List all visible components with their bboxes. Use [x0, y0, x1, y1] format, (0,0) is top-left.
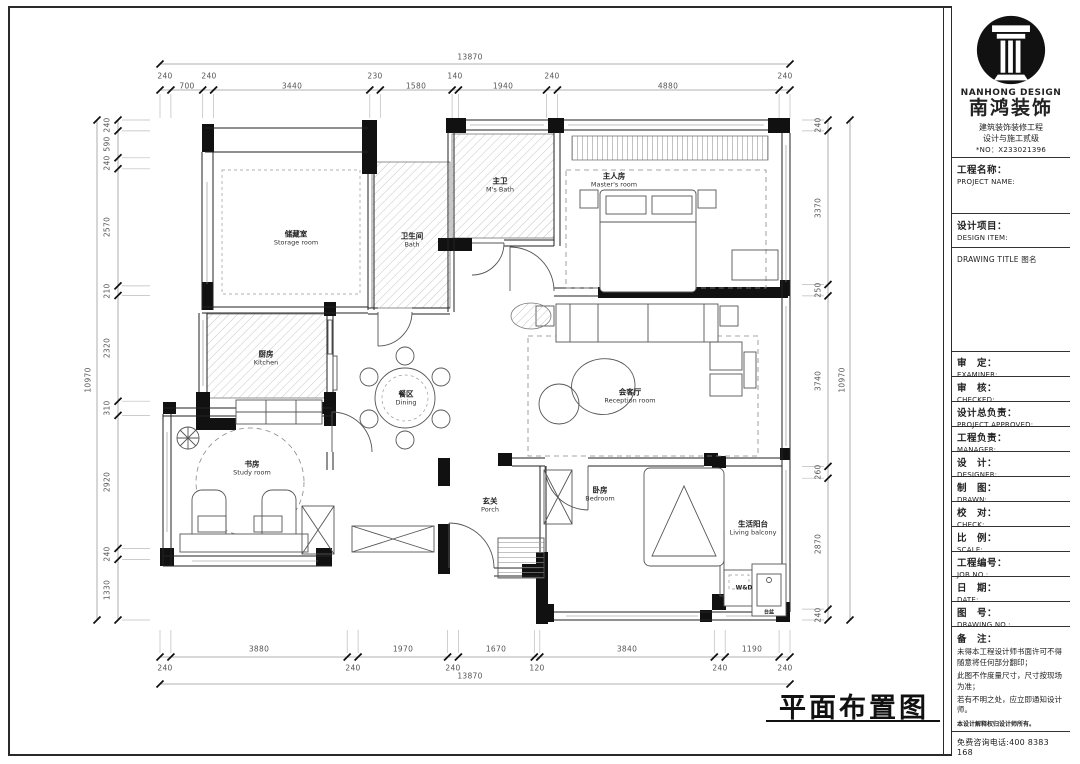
dim-label: 1670: [486, 645, 506, 654]
room-name-cn: 卫生间: [401, 231, 424, 240]
room-label-bedroom: 卧房 Bedroom: [585, 485, 614, 503]
dim-label: 120: [529, 664, 544, 673]
master-bed: [600, 190, 696, 292]
door-swings: [332, 243, 588, 568]
dim-total-top: 13870: [457, 53, 482, 62]
dim-total-left: 10970: [84, 367, 93, 392]
room-label-masters-bath: 主卫 M's Bath: [486, 176, 514, 194]
field-label-cn: 审 核：: [957, 380, 1065, 394]
dim-label: 310: [103, 400, 112, 415]
dim-label: 3370: [814, 198, 823, 218]
tv-cabinet: [710, 342, 742, 370]
room-name-cn: 餐区: [396, 389, 417, 398]
lounge-chair: [539, 384, 579, 424]
dim-label: 1970: [393, 645, 413, 654]
dim-label: 240: [712, 664, 727, 673]
hotline: 免费咨询电话:400 8383 168: [952, 732, 1070, 756]
dim-label: 140: [447, 72, 462, 81]
floor-plan-drawing: [0, 0, 945, 764]
field-label-cn: 图 号：: [957, 605, 1065, 619]
dining-chair: [432, 368, 450, 386]
room-name-cn: 卧房: [585, 485, 614, 494]
dim-label: 1190: [742, 645, 762, 654]
room-label-living-balcony: 生活阳台 Living balcony: [730, 519, 777, 537]
dim-label: 240: [103, 155, 112, 170]
room-name-en: Kitchen: [254, 359, 278, 367]
side-table: [720, 306, 738, 326]
room-label-bath: 卫生间 Bath: [401, 231, 424, 249]
room-name-en: Storage room: [274, 239, 318, 247]
cert-line2: 设计与施工贰级: [952, 133, 1070, 144]
room-label-porch: 玄关 Porch: [481, 496, 499, 514]
room-name-cn: 主人房: [591, 171, 637, 180]
dim-label: 590: [103, 136, 112, 151]
dim-label: 240: [157, 72, 172, 81]
dim-label: 700: [179, 82, 194, 91]
cert-line1: 建筑装饰装修工程: [952, 122, 1070, 133]
field-label-cn: 工程名称：: [957, 162, 1065, 176]
room-name-en: Bedroom: [585, 495, 614, 503]
field-label-cn: 制 图：: [957, 480, 1065, 494]
room-label-reception: 会客厅 Reception room: [604, 387, 655, 405]
license-number: *NO：X233021396: [952, 145, 1070, 155]
dim-label: 250: [814, 282, 823, 297]
field-scale: 比 例： SCALE:: [952, 527, 1070, 552]
dim-label: 4880: [658, 82, 678, 91]
field-label-cn: 审 定：: [957, 355, 1065, 369]
dresser: [732, 250, 778, 280]
dim-label: 240: [103, 546, 112, 561]
field-label-cn: 比 例：: [957, 530, 1065, 544]
field-project-approved: 设计总负责： PROJECT APPROVED:: [952, 402, 1070, 427]
dim-label: 240: [345, 664, 360, 673]
nightstand: [698, 190, 716, 208]
notes-title: 备 注：: [957, 631, 1065, 645]
dim-label: 1940: [493, 82, 513, 91]
room-name-en: Reception room: [604, 397, 655, 405]
dim-label: 3440: [282, 82, 302, 91]
dim-label: 240: [157, 664, 172, 673]
field-design-item: 设计项目： DESIGN ITEM:: [952, 214, 1070, 248]
dim-label: 2920: [103, 472, 112, 492]
dim-label: 1330: [103, 580, 112, 600]
field-label-cn: 设计项目：: [957, 218, 1065, 232]
sofa: [556, 304, 718, 342]
plant: [511, 303, 551, 329]
dim-label: 240: [814, 117, 823, 132]
field-designer: 设 计： DESIGNER:: [952, 452, 1070, 477]
dim-label: 230: [367, 72, 382, 81]
dining-chair: [396, 431, 414, 449]
field-label-cn: 工程负责：: [957, 430, 1065, 444]
dim-label: 240: [201, 72, 216, 81]
room-label-storage: 储藏室 Storage room: [274, 229, 318, 247]
dim-label: 210: [103, 283, 112, 298]
room-name-en: Study room: [233, 469, 271, 477]
dim-label: 240: [814, 607, 823, 622]
dim-total-bottom: 13870: [457, 672, 482, 681]
room-label-master-room: 主人房 Master's room: [591, 171, 637, 189]
field-manager: 工程负责： MANAGER:: [952, 427, 1070, 452]
note-line: 若有不明之处，应立即通知设计师。: [957, 695, 1065, 717]
washer-dryer-label: W&D: [736, 585, 753, 592]
field-job-no: 工程编号： JOB NO.:: [952, 552, 1070, 577]
drawing-sheet: { "sheet": { "drawing_title": "平面布置图" },…: [0, 0, 1080, 764]
field-label-cn: 设计总负责：: [957, 405, 1065, 419]
field-label-cn: 校 对：: [957, 505, 1065, 519]
basin-label: 台盆: [764, 609, 774, 616]
dim-label: 2320: [103, 338, 112, 358]
room-name-en: Porch: [481, 506, 499, 514]
master-wardrobe: [572, 136, 768, 160]
dim-label: 240: [544, 72, 559, 81]
dim-label: 240: [777, 72, 792, 81]
drawing-title-underline: [766, 720, 940, 722]
bed: [644, 468, 724, 566]
room-name-en: Bath: [401, 241, 424, 249]
field-drawn: 制 图： DRAWN:: [952, 477, 1070, 502]
company-certification: 建筑装饰装修工程 设计与施工贰级: [952, 122, 1070, 144]
dining-chair: [360, 410, 378, 428]
note-line: 此图不作度量尺寸，尺寸按现场为准；: [957, 671, 1065, 693]
room-label-study: 书房 Study room: [233, 459, 271, 477]
field-date: 日 期： DATE:: [952, 577, 1070, 602]
tv-cabinet: [710, 374, 742, 396]
shoe-bench: [498, 538, 544, 578]
room-name-cn: 书房: [233, 459, 271, 468]
field-label-en: DRAWING TITLE 图名: [957, 254, 1065, 265]
room-name-en: M's Bath: [486, 186, 514, 194]
room-name-en: Master's room: [591, 181, 637, 189]
disclaimer: 本设计解释权归设计师所有。: [957, 719, 1065, 728]
dim-label: 240: [103, 117, 112, 132]
field-examiner: 审 定： EXAMINER:: [952, 352, 1070, 377]
dining-chair: [432, 410, 450, 428]
dim-label: 1580: [406, 82, 426, 91]
dim-label: 240: [777, 664, 792, 673]
dim-label: 3840: [617, 645, 637, 654]
dining-chair: [360, 368, 378, 386]
desk: [180, 534, 308, 552]
dim-total-right: 10970: [838, 367, 847, 392]
room-name-en: Dining: [396, 399, 417, 407]
field-drawing-no: 图 号： DRAWING NO.:: [952, 602, 1070, 627]
field-label-en: PROJECT NAME:: [957, 178, 1065, 186]
dim-label: 260: [814, 464, 823, 479]
title-block: NANHONG DESIGN 南鸿装饰 建筑装饰装修工程 设计与施工贰级 *NO…: [951, 6, 1070, 756]
note-line: 未得本工程设计师书面许可不得随意将任何部分翻印；: [957, 647, 1065, 669]
dim-label: 2570: [103, 217, 112, 237]
room-name-cn: 储藏室: [274, 229, 318, 238]
field-label-cn: 日 期：: [957, 580, 1065, 594]
dim-label: 2870: [814, 534, 823, 554]
field-checked: 审 核： CHECKED:: [952, 377, 1070, 402]
room-label-kitchen: 厨房 Kitchen: [254, 349, 278, 367]
dining-chair: [396, 347, 414, 365]
company-name-cn: 南鸿装饰: [952, 98, 1070, 119]
room-name-cn: 生活阳台: [730, 519, 777, 528]
dim-label: 3740: [814, 371, 823, 391]
field-project-name: 工程名称： PROJECT NAME:: [952, 158, 1070, 214]
titleblock-header: NANHONG DESIGN 南鸿装饰 建筑装饰装修工程 设计与施工贰级 *NO…: [952, 6, 1070, 158]
nightstand: [580, 190, 598, 208]
room-name-en: Living balcony: [730, 529, 777, 537]
company-logo-column-icon: [973, 14, 1049, 86]
field-label-cn: 工程编号：: [957, 555, 1065, 569]
room-name-cn: 厨房: [254, 349, 278, 358]
field-check: 校 对： CHECK:: [952, 502, 1070, 527]
room-label-dining: 餐区 Dining: [396, 389, 417, 407]
field-label-cn: 设 计：: [957, 455, 1065, 469]
field-label-en: DESIGN ITEM:: [957, 234, 1065, 242]
room-name-cn: 玄关: [481, 496, 499, 505]
field-drawing-title: DRAWING TITLE 图名: [952, 248, 1070, 352]
room-name-cn: 主卫: [486, 176, 514, 185]
notes-section: 备 注： 未得本工程设计师书面许可不得随意将任何部分翻印； 此图不作度量尺寸，尺…: [952, 627, 1070, 732]
dim-label: 3880: [249, 645, 269, 654]
room-name-cn: 会客厅: [604, 387, 655, 396]
